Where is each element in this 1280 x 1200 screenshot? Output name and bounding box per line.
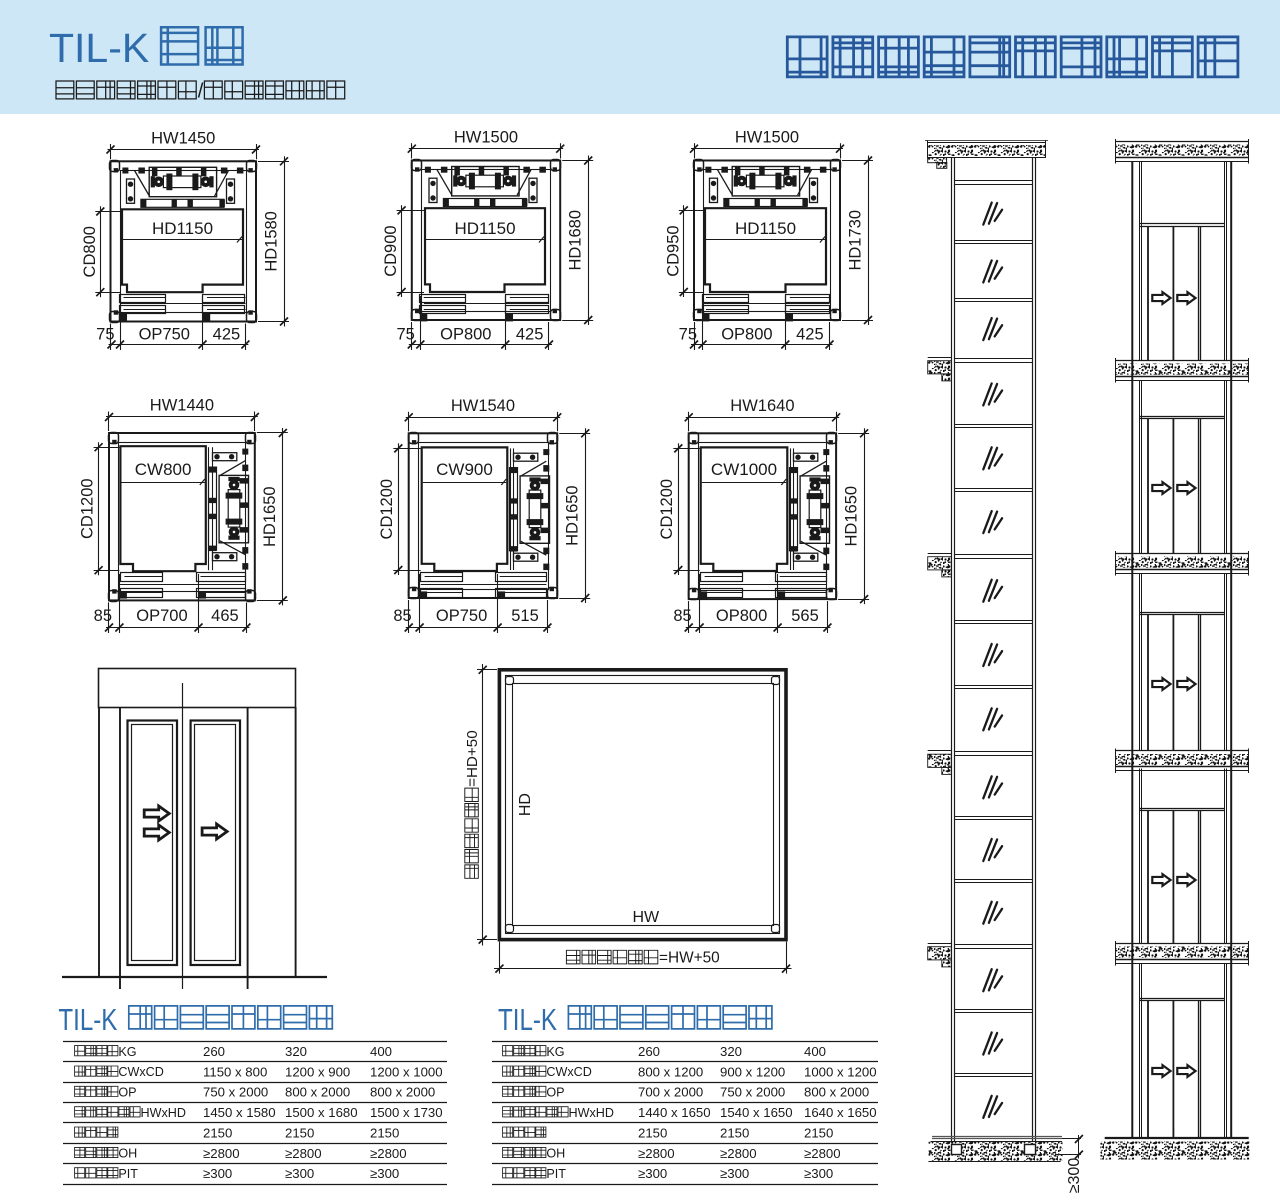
svg-text:≥2800: ≥2800: [285, 1146, 322, 1161]
svg-text:800 x 1200: 800 x 1200: [638, 1064, 703, 1079]
svg-text:CW1000: CW1000: [711, 460, 777, 479]
svg-text:1540 x 1650: 1540 x 1650: [720, 1105, 793, 1120]
svg-text:85: 85: [393, 607, 411, 625]
svg-text:CD950: CD950: [664, 225, 682, 276]
svg-text:260: 260: [638, 1044, 660, 1059]
svg-text:85: 85: [673, 607, 691, 625]
svg-text:HW1540: HW1540: [451, 397, 515, 415]
svg-text:HD1680: HD1680: [566, 210, 584, 271]
svg-text:≥2800: ≥2800: [370, 1146, 407, 1161]
svg-text:750 x 2000: 750 x 2000: [203, 1085, 268, 1100]
svg-text:≥2800: ≥2800: [720, 1146, 757, 1161]
svg-text:465: 465: [211, 607, 239, 625]
svg-text:75: 75: [96, 326, 114, 344]
svg-text:≥300: ≥300: [804, 1166, 833, 1181]
svg-text:≥300: ≥300: [638, 1166, 667, 1181]
svg-text:75: 75: [679, 326, 697, 344]
svg-text:1150 x 800: 1150 x 800: [203, 1064, 267, 1079]
svg-text:900 x 1200: 900 x 1200: [720, 1064, 785, 1079]
svg-text:OP: OP: [546, 1086, 564, 1100]
svg-text:320: 320: [720, 1044, 742, 1059]
svg-text:HW1440: HW1440: [150, 397, 214, 415]
svg-text:1200 x 1000: 1200 x 1000: [370, 1064, 443, 1079]
svg-text:/: /: [198, 80, 204, 102]
svg-text:1200 x 900: 1200 x 900: [285, 1064, 350, 1079]
svg-text:2150: 2150: [638, 1125, 667, 1140]
svg-text:HD1150: HD1150: [454, 219, 515, 238]
svg-text:565: 565: [791, 607, 819, 625]
svg-text:≥2800: ≥2800: [804, 1146, 841, 1161]
svg-text:HD1650: HD1650: [563, 485, 581, 546]
svg-text:=HD+50: =HD+50: [464, 730, 481, 787]
svg-text:HD1150: HD1150: [735, 219, 796, 238]
svg-text:≥2800: ≥2800: [638, 1146, 675, 1161]
svg-text:OP750: OP750: [436, 607, 487, 625]
svg-text:HW1500: HW1500: [454, 129, 518, 147]
svg-text:1440 x 1650: 1440 x 1650: [638, 1105, 711, 1120]
svg-text:1500 x 1730: 1500 x 1730: [370, 1105, 443, 1120]
svg-text:HW1640: HW1640: [730, 397, 794, 415]
svg-text:OH: OH: [546, 1147, 565, 1161]
svg-text:CWxCD: CWxCD: [546, 1065, 591, 1079]
svg-text:OP800: OP800: [721, 326, 772, 344]
svg-text:PIT: PIT: [118, 1167, 138, 1181]
svg-text:75: 75: [396, 326, 414, 344]
svg-text:1000 x 1200: 1000 x 1200: [804, 1064, 877, 1079]
svg-text:HD1150: HD1150: [152, 219, 213, 238]
svg-text:2150: 2150: [720, 1125, 749, 1140]
svg-text:CD1200: CD1200: [658, 479, 676, 540]
svg-text:OP: OP: [118, 1086, 136, 1100]
svg-text:HD: HD: [517, 793, 534, 816]
svg-text:CD900: CD900: [382, 225, 400, 276]
svg-text:425: 425: [516, 326, 544, 344]
svg-text:≥300: ≥300: [203, 1166, 232, 1181]
svg-text:HW1500: HW1500: [735, 129, 799, 147]
svg-text:HD1650: HD1650: [842, 486, 860, 547]
svg-text:CD1200: CD1200: [78, 478, 96, 539]
svg-text:2150: 2150: [285, 1125, 314, 1140]
svg-text:CWxCD: CWxCD: [118, 1065, 163, 1079]
svg-text:≥2800: ≥2800: [203, 1146, 240, 1161]
svg-text:2150: 2150: [370, 1125, 399, 1140]
svg-text:HD1650: HD1650: [261, 486, 279, 547]
svg-text:HD1580: HD1580: [262, 211, 280, 272]
svg-text:260: 260: [203, 1044, 225, 1059]
svg-text:TIL-K: TIL-K: [49, 25, 149, 71]
svg-text:HW: HW: [632, 909, 660, 926]
svg-text:800 x 2000: 800 x 2000: [804, 1085, 869, 1100]
svg-text:≥300: ≥300: [1066, 1158, 1083, 1194]
svg-text:425: 425: [213, 326, 241, 344]
svg-text:CW900: CW900: [436, 460, 493, 479]
svg-text:800 x 2000: 800 x 2000: [285, 1085, 350, 1100]
svg-text:OH: OH: [118, 1147, 137, 1161]
svg-text:750 x 2000: 750 x 2000: [720, 1085, 785, 1100]
svg-text:400: 400: [804, 1044, 826, 1059]
svg-text:OP800: OP800: [440, 326, 491, 344]
svg-text:85: 85: [94, 607, 112, 625]
svg-text:515: 515: [511, 607, 539, 625]
svg-text:KG: KG: [546, 1045, 564, 1059]
svg-text:TIL-K: TIL-K: [498, 1002, 557, 1037]
svg-text:=HW+50: =HW+50: [659, 950, 720, 967]
svg-text:1640 x 1650: 1640 x 1650: [804, 1105, 877, 1120]
svg-text:HW1450: HW1450: [151, 130, 215, 148]
svg-text:700 x 2000: 700 x 2000: [638, 1085, 703, 1100]
svg-text:HD1730: HD1730: [846, 210, 864, 271]
svg-text:400: 400: [370, 1044, 392, 1059]
svg-text:2150: 2150: [804, 1125, 833, 1140]
svg-text:OP700: OP700: [136, 607, 187, 625]
svg-text:≥300: ≥300: [370, 1166, 399, 1181]
svg-text:2150: 2150: [203, 1125, 232, 1140]
svg-text:1500 x 1680: 1500 x 1680: [285, 1105, 358, 1120]
svg-text:TIL-K: TIL-K: [58, 1002, 117, 1037]
svg-text:≥300: ≥300: [285, 1166, 314, 1181]
svg-text:320: 320: [285, 1044, 307, 1059]
svg-text:OP800: OP800: [716, 607, 767, 625]
svg-text:800 x 2000: 800 x 2000: [370, 1085, 435, 1100]
svg-text:HWxHD: HWxHD: [141, 1106, 186, 1120]
svg-text:HWxHD: HWxHD: [569, 1106, 614, 1120]
svg-text:1450 x 1580: 1450 x 1580: [203, 1105, 276, 1120]
svg-text:PIT: PIT: [546, 1167, 566, 1181]
svg-text:≥300: ≥300: [720, 1166, 749, 1181]
svg-text:KG: KG: [118, 1045, 136, 1059]
svg-text:OP750: OP750: [139, 326, 190, 344]
svg-text:425: 425: [796, 326, 824, 344]
svg-text:CD1200: CD1200: [378, 479, 396, 540]
svg-text:CD800: CD800: [81, 226, 99, 277]
svg-text:CW800: CW800: [135, 460, 192, 479]
